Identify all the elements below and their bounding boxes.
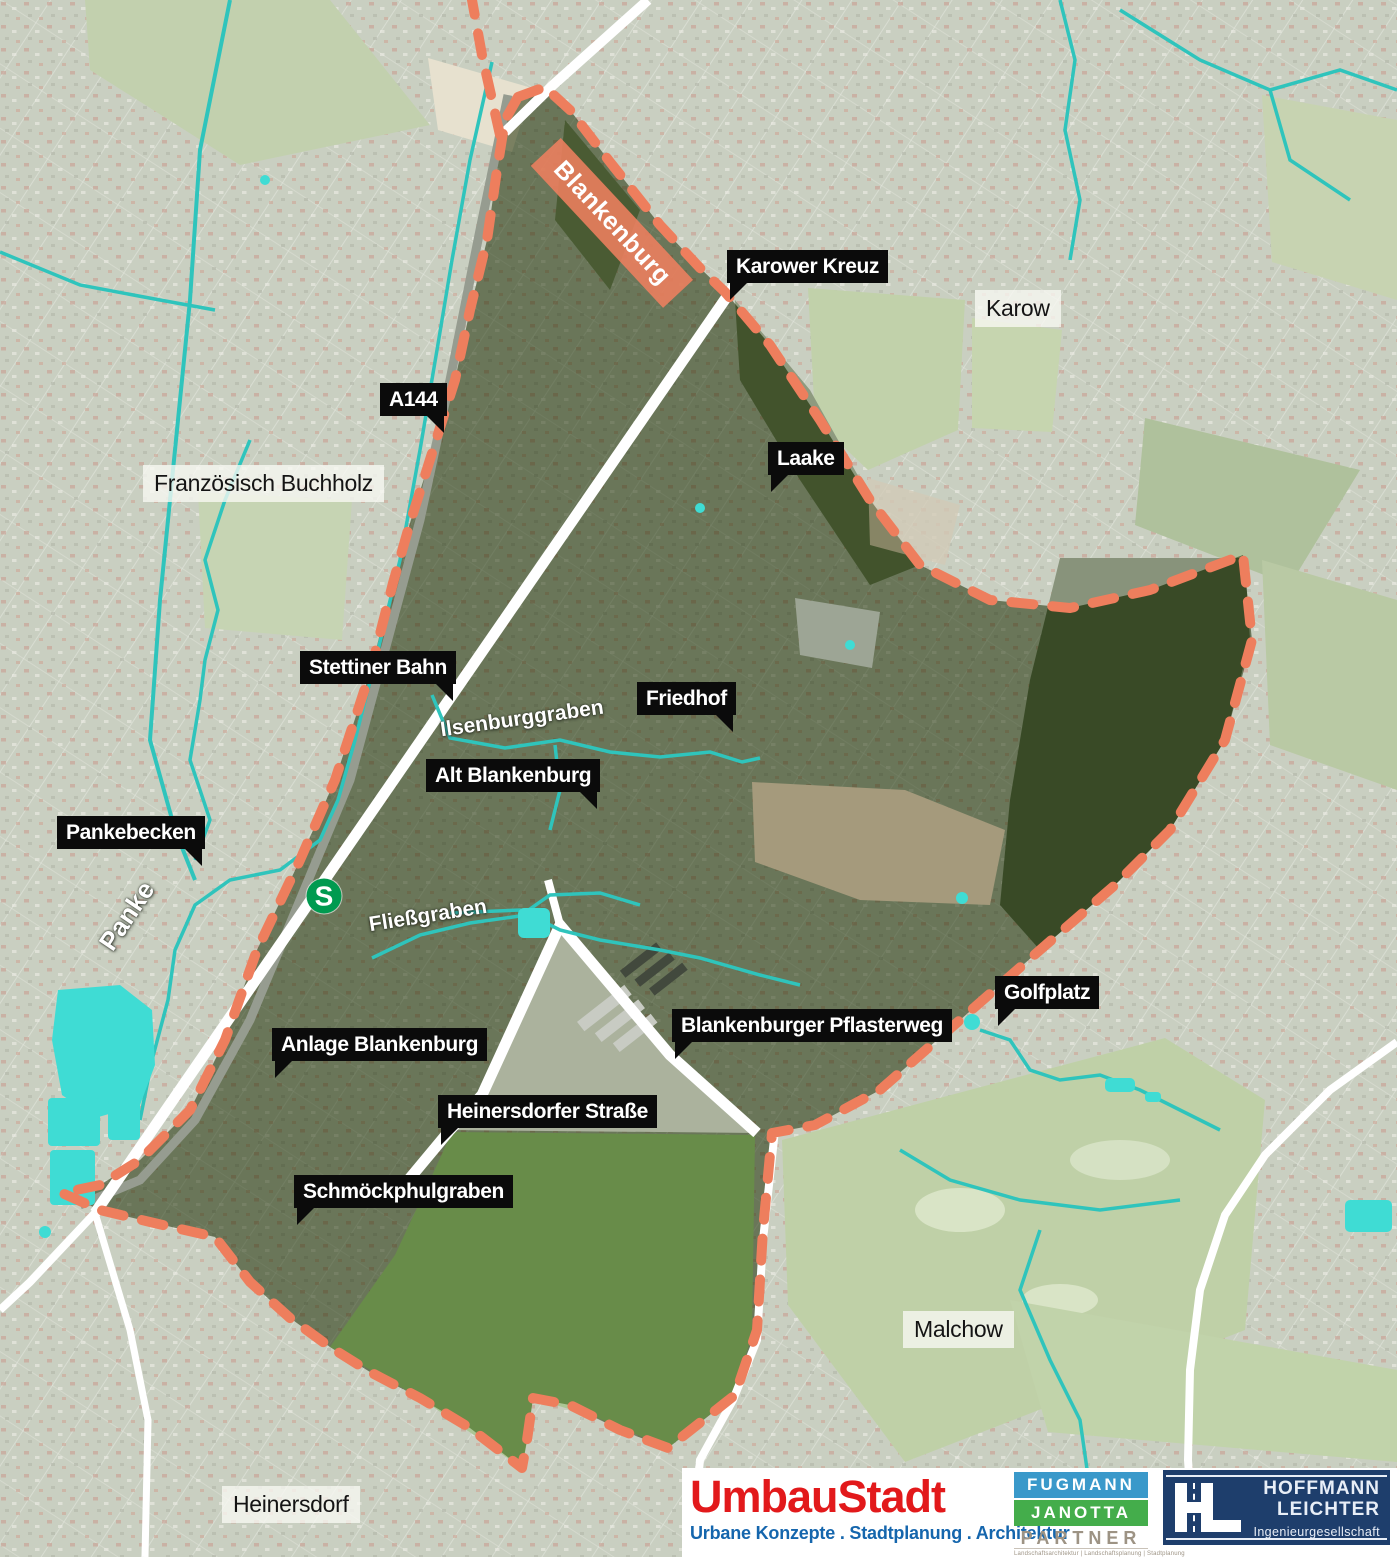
callout-tail-icon: [675, 1042, 692, 1059]
callout-laake: Laake: [768, 442, 844, 475]
callout-stettiner-bahn: Stettiner Bahn: [300, 651, 456, 684]
callout-text: Heinersdorfer Straße: [447, 1100, 648, 1123]
callout-karower-kreuz: Karower Kreuz: [727, 250, 888, 283]
callout-anlage-blankenburg: Anlage Blankenburg: [272, 1028, 487, 1061]
callout-tail-icon: [436, 684, 453, 701]
callout-blankenburger-pflasterweg: Blankenburger Pflasterweg: [672, 1009, 952, 1042]
hl-subtitle: Ingenieurgesellschaft: [1253, 1525, 1380, 1539]
callout-text: Laake: [777, 447, 835, 470]
hl-monogram-icon: [1175, 1483, 1247, 1532]
callout-text: Blankenburger Pflasterweg: [681, 1014, 943, 1037]
hoffmann-leichter-logo: HOFFMANN LEICHTER Ingenieurgesellschaft: [1163, 1470, 1390, 1545]
hl-text: HOFFMANN LEICHTER Ingenieurgesellschaft: [1253, 1478, 1380, 1539]
callout-text: Friedhof: [646, 687, 727, 710]
callout-tail-icon: [716, 715, 733, 732]
sbahn-station-icon: S: [307, 879, 342, 914]
area-label-malchow: Malchow: [903, 1311, 1014, 1348]
hl-box: HOFFMANN LEICHTER Ingenieurgesellschaft: [1163, 1470, 1390, 1545]
callout-alt-blankenburg: Alt Blankenburg: [426, 759, 600, 792]
callout-golfplatz: Golfplatz: [995, 976, 1099, 1009]
area-label-karow: Karow: [975, 290, 1061, 327]
callout-tail-icon: [580, 792, 597, 809]
callout-tail-icon: [275, 1061, 292, 1078]
callout-a144: A144: [380, 383, 447, 416]
callout-tail-icon: [441, 1128, 458, 1145]
callout-tail-icon: [771, 475, 788, 492]
callout-tail-icon: [998, 1009, 1015, 1026]
map-page: Karower KreuzA144LaakeStettiner BahnFrie…: [0, 0, 1397, 1557]
callout-text: Pankebecken: [66, 821, 196, 844]
janotta-bar: JANOTTA: [1014, 1500, 1148, 1526]
umbaustadt-logo: UmbauStadt Urbane Konzepte . Stadtplanun…: [690, 1474, 1070, 1544]
hl-rule-top: [1166, 1475, 1387, 1477]
umbaustadt-name: UmbauStadt: [690, 1474, 1070, 1520]
aerial-map: [0, 0, 1397, 1557]
callout-friedhof: Friedhof: [637, 682, 736, 715]
callout-heinersdorfer-stra-e: Heinersdorfer Straße: [438, 1095, 657, 1128]
fugmann-janotta-logo: FUGMANN JANOTTA PARTNER Landschaftsarchi…: [1014, 1472, 1148, 1557]
fugmann-bar: FUGMANN: [1014, 1472, 1148, 1498]
partner-text: PARTNER: [1014, 1528, 1148, 1549]
footer-logo-bar: UmbauStadt Urbane Konzepte . Stadtplanun…: [682, 1468, 1397, 1557]
callout-tail-icon: [427, 416, 444, 433]
callout-tail-icon: [297, 1208, 314, 1225]
hoffmann-text: HOFFMANN: [1253, 1478, 1380, 1499]
callout-text: A144: [389, 388, 438, 411]
callout-text: Golfplatz: [1004, 981, 1090, 1004]
umbaustadt-tagline: Urbane Konzepte . Stadtplanung . Archite…: [690, 1523, 1070, 1544]
area-label-heinersdorf: Heinersdorf: [222, 1486, 360, 1523]
fugmann-tagline: Landschaftsarchitektur | Landschaftsplan…: [1014, 1551, 1148, 1557]
callout-pankebecken: Pankebecken: [57, 816, 205, 849]
callout-text: Alt Blankenburg: [435, 764, 591, 787]
leichter-text: LEICHTER: [1253, 1499, 1380, 1520]
callout-tail-icon: [185, 849, 202, 866]
callout-text: Schmöckphulgraben: [303, 1180, 504, 1203]
callout-schm-ckphulgraben: Schmöckphulgraben: [294, 1175, 513, 1208]
callout-text: Karower Kreuz: [736, 255, 879, 278]
callout-tail-icon: [730, 283, 747, 300]
area-label-franz-sisch-buchholz: Französisch Buchholz: [143, 465, 384, 502]
callout-text: Stettiner Bahn: [309, 656, 447, 679]
callout-text: Anlage Blankenburg: [281, 1033, 478, 1056]
